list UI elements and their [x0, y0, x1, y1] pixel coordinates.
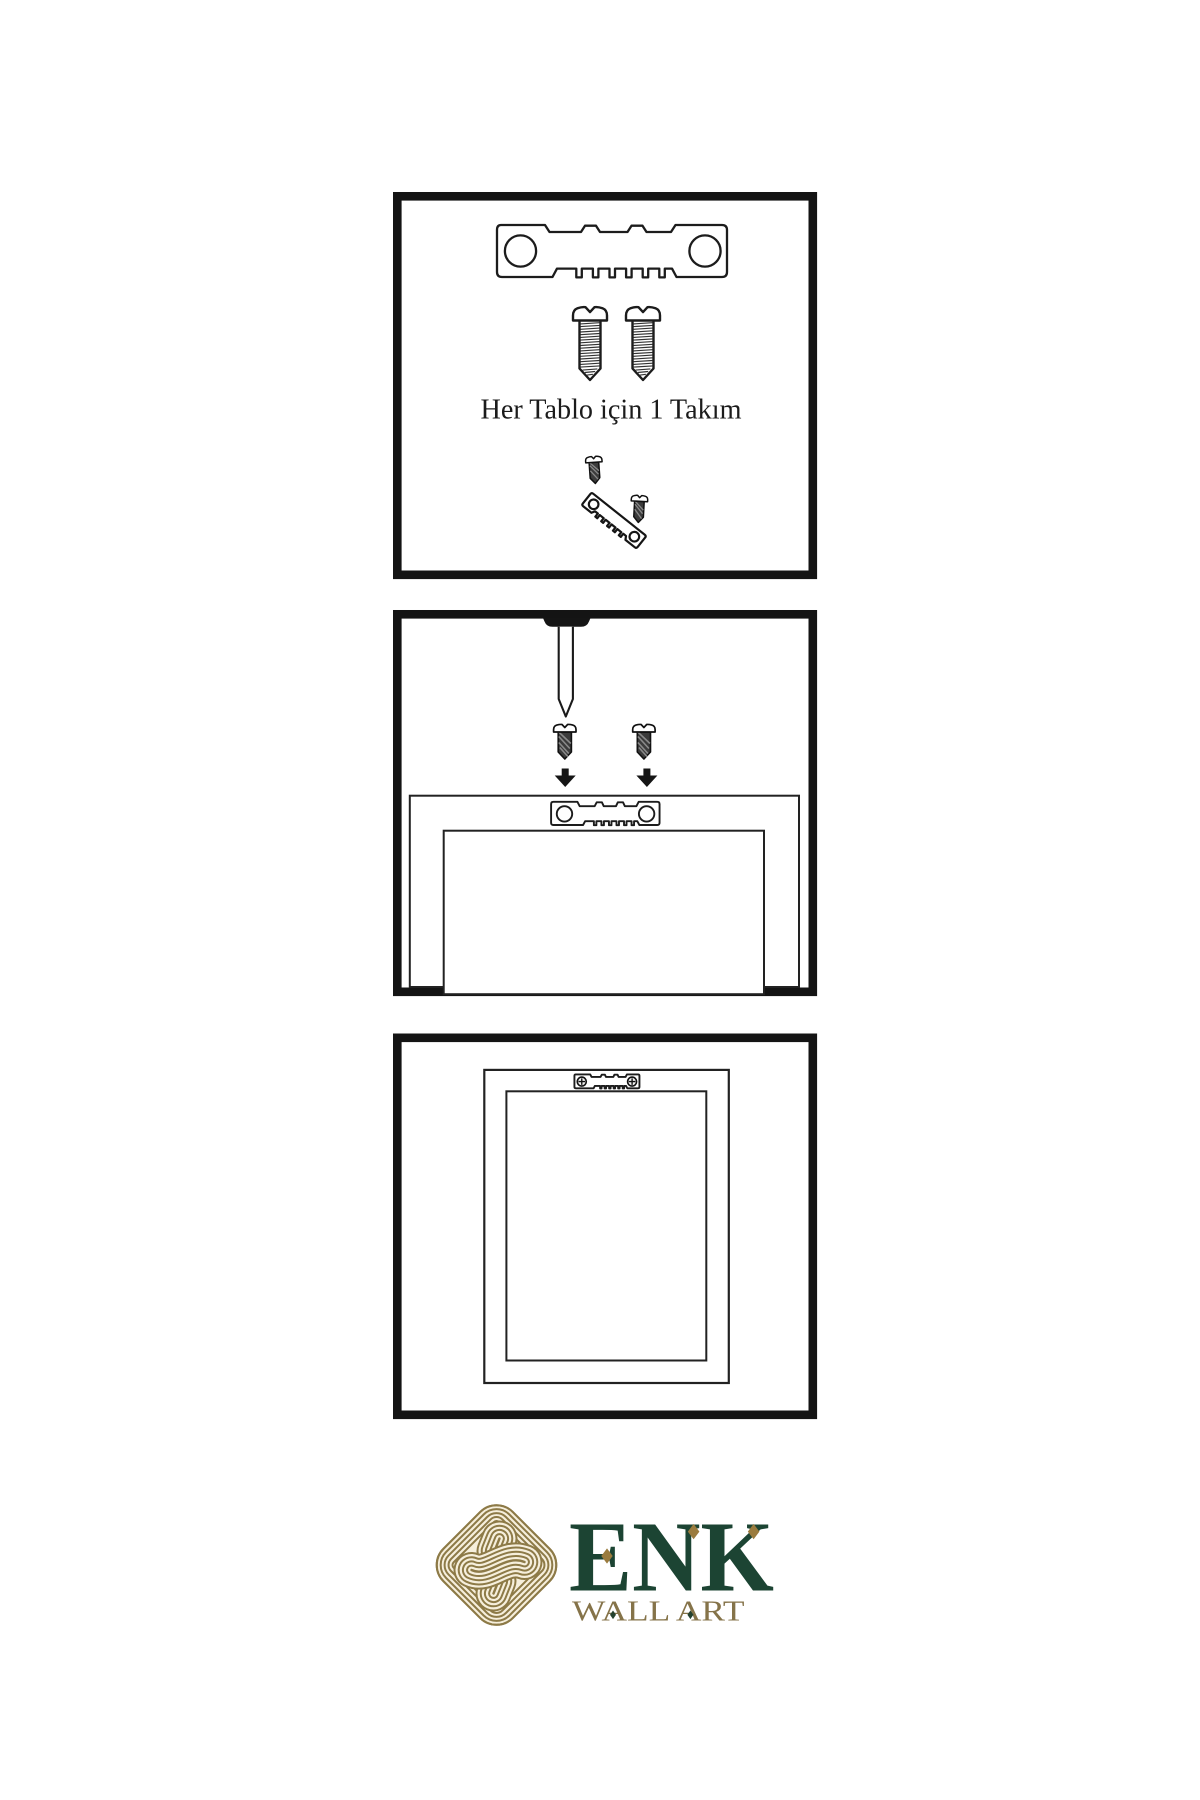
svg-text:WALL ART: WALL ART — [572, 1596, 745, 1628]
svg-text:Her Tablo için 1 Takım: Her Tablo için 1 Takım — [481, 395, 742, 426]
